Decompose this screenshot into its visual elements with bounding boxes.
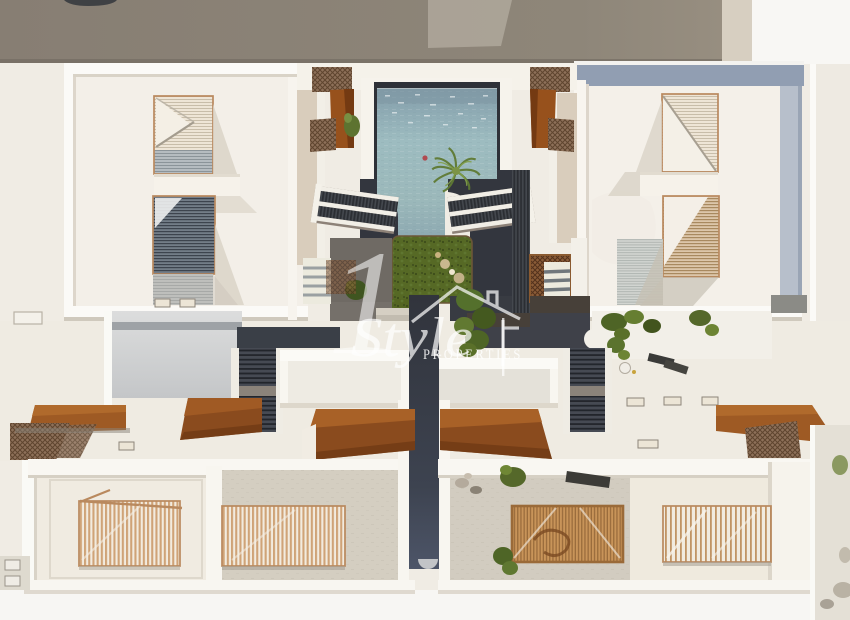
svg-text:PROPERTIES: PROPERTIES: [423, 347, 523, 363]
